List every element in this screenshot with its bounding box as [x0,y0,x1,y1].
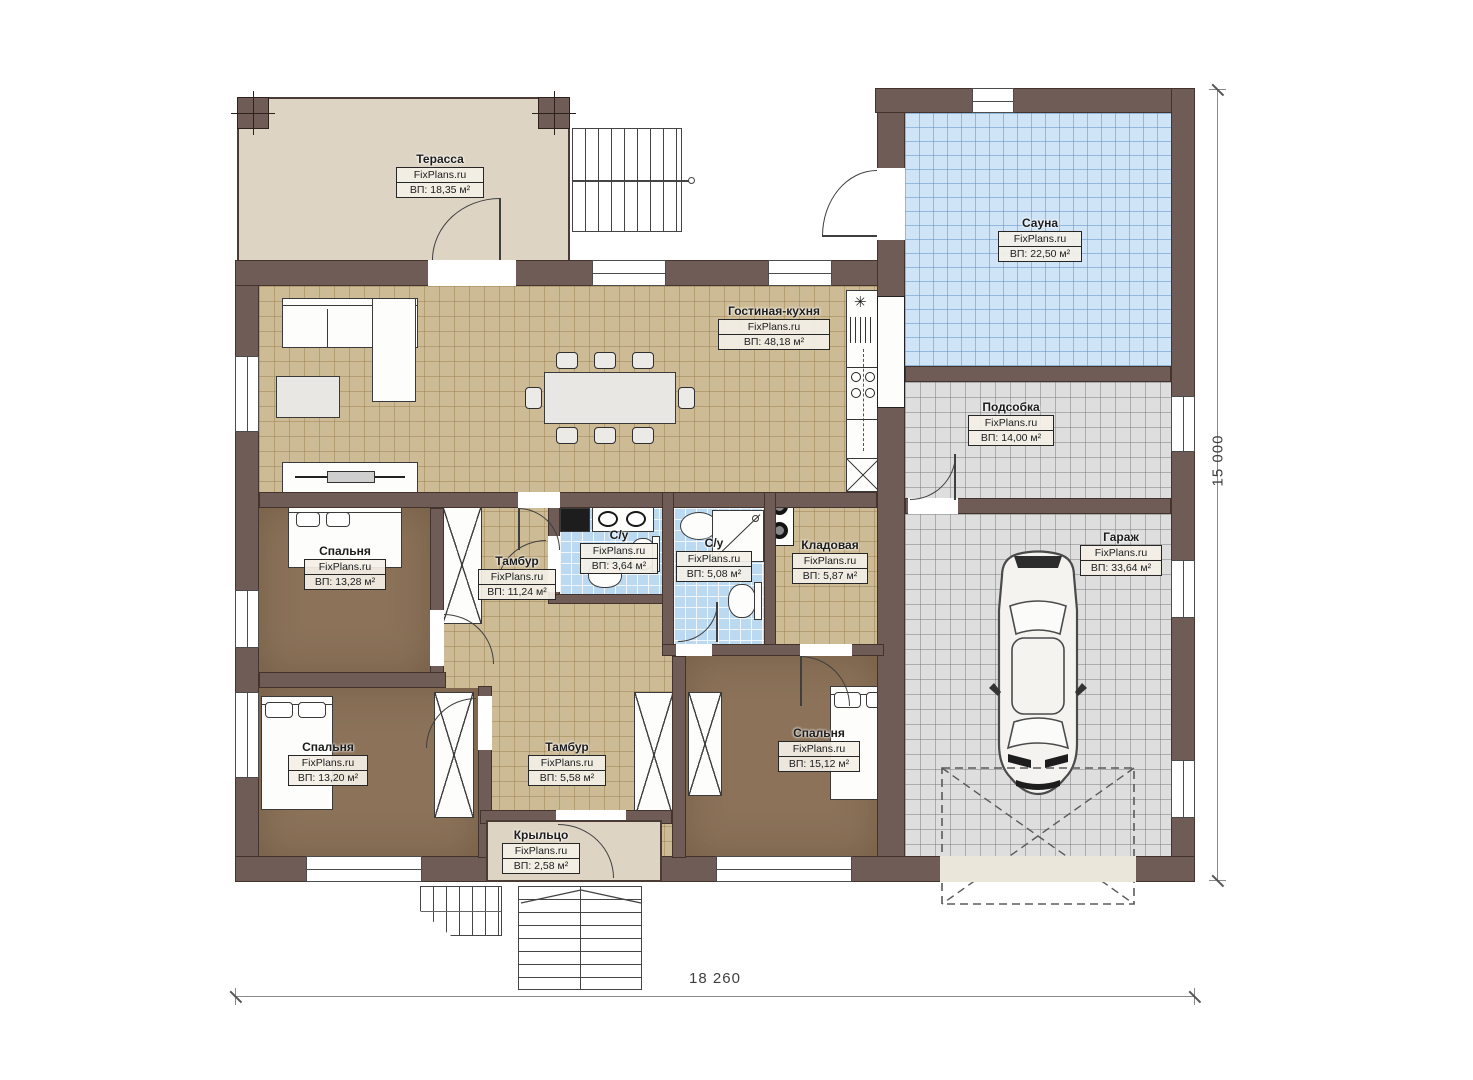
window [306,856,422,882]
stove-burner-icon [851,372,861,382]
wall [548,594,674,604]
dimension-value-right: 15 000 [1210,429,1227,493]
vent-shaft [877,296,905,408]
chair [525,387,542,409]
room-name: Тамбур [478,554,556,568]
stove-burner-icon [865,372,875,382]
wall [259,672,446,688]
room-area: ВП: 33,64 м² [1081,560,1161,575]
garage-gate-opening [940,856,1136,882]
room-area: ВП: 18,35 м² [397,182,483,197]
toilet-tank [754,582,762,620]
chair [594,427,616,444]
door-opening [430,610,444,666]
chair [632,352,654,369]
room-area: ВП: 3,64 м² [581,558,657,573]
dimension-value-bottom: 18 260 [645,970,785,987]
wall [662,492,674,656]
tv-stand [282,462,418,494]
chair [556,427,578,444]
wardrobe [442,506,482,624]
room-area: ВП: 48,18 м² [719,334,829,349]
door-opening [800,644,852,656]
dish-rack-icon [850,317,875,343]
room-name: Тамбур [528,740,606,754]
room-name: Подсобка [968,400,1054,414]
room-name: Спальня [304,544,386,558]
brand-watermark: FixPlans.ru [503,844,579,858]
chair [594,352,616,369]
room-name: Кладовая [792,538,868,552]
brand-watermark: FixPlans.ru [969,416,1053,430]
door-leaf [800,656,802,706]
brand-watermark: FixPlans.ru [793,554,867,568]
room-label-storage: Кладовая FixPlans.ru ВП: 5,87 м² [792,538,868,584]
fridge [846,458,880,492]
chair [632,427,654,444]
room-label-hall2: Тамбур FixPlans.ru ВП: 5,58 м² [528,740,606,786]
room-name: Спальня [778,726,860,740]
window [768,260,832,286]
room-name: С/у [580,528,658,542]
room-name: Спальня [288,740,368,754]
room-area: ВП: 15,12 м² [779,756,859,771]
door-arc [822,170,877,236]
coffee-table [276,376,340,418]
door-opening [908,498,958,514]
door-opening [478,696,492,750]
brand-watermark: FixPlans.ru [779,742,859,756]
room-label-bath2: С/у FixPlans.ru ВП: 5,08 м² [676,536,752,582]
wardrobe [634,692,674,818]
door-leaf [716,602,718,642]
brand-watermark: FixPlans.ru [529,756,605,770]
room-label-porch: Крыльцо FixPlans.ru ВП: 2,58 м² [502,828,580,874]
room-name: Гараж [1080,530,1162,544]
wall [235,260,259,882]
room-label-terrace: Терасса FixPlans.ru ВП: 18,35 м² [396,152,484,198]
chair [678,387,695,409]
room-label-bedroom2: Спальня FixPlans.ru ВП: 13,20 м² [288,740,368,786]
room-label-utility: Подсобка FixPlans.ru ВП: 14,00 м² [968,400,1054,446]
door-leaf [822,235,877,237]
pillow [326,512,350,527]
door-opening [676,644,712,656]
room-area: ВП: 2,58 м² [503,858,579,873]
room-area: ВП: 22,50 м² [999,246,1081,261]
door-opening [877,168,905,240]
room-name: Терасса [396,152,484,166]
window [1171,560,1195,618]
window [235,692,259,778]
room-area: ВП: 5,08 м² [677,566,751,581]
room-label-hall1: Тамбур FixPlans.ru ВП: 11,24 м² [478,554,556,600]
room-name: Сауна [998,216,1082,230]
pillow [298,702,326,718]
pillow [296,512,320,527]
brand-watermark: FixPlans.ru [999,232,1081,246]
room-label-garage: Гараж FixPlans.ru ВП: 33,64 м² [1080,530,1162,576]
pillow [265,702,293,718]
terrace-stairs [572,128,682,232]
window [716,856,852,882]
door-opening [518,492,560,508]
window [235,356,259,432]
wall [672,656,686,858]
terrace-post [538,97,570,129]
car [986,546,1090,802]
room-area: ВП: 13,28 м² [305,574,385,589]
door-leaf [499,198,501,260]
dining-table [544,372,676,424]
brand-watermark: FixPlans.ru [719,320,829,334]
entrance-stairs [518,886,642,990]
wall [875,88,1195,113]
wall [905,366,1171,382]
door-opening [428,260,516,286]
wall [764,492,776,656]
room-area: ВП: 11,24 м² [479,584,555,599]
brand-watermark: FixPlans.ru [1081,546,1161,560]
window [1171,760,1195,818]
garage-entry-zone [940,766,1136,906]
dimension-line-bottom [235,996,1195,997]
brand-watermark: FixPlans.ru [305,560,385,574]
room-label-bedroom1: Спальня FixPlans.ru ВП: 13,28 м² [304,544,386,590]
brand-watermark: FixPlans.ru [479,570,555,584]
wardrobe [688,692,722,796]
room-label-bedroom3: Спальня FixPlans.ru ВП: 15,12 м² [778,726,860,772]
chair [556,352,578,369]
room-label-sauna: Сауна FixPlans.ru ВП: 22,50 м² [998,216,1082,262]
toilet [728,584,756,618]
room-label-living-kitchen: Гостиная-кухня FixPlans.ru ВП: 48,18 м² [718,304,830,350]
wall [259,492,877,508]
sofa-chaise [372,298,416,402]
room-area: ВП: 5,58 м² [529,770,605,785]
door-leaf [954,454,956,500]
window [972,88,1014,113]
brand-watermark: FixPlans.ru [289,756,367,770]
terrace-post [237,97,269,129]
stove-burner-icon [851,388,861,398]
room-name: С/у [676,536,752,550]
brand-watermark: FixPlans.ru [397,168,483,182]
side-stairs [420,886,502,936]
room-area: ВП: 13,20 м² [289,770,367,785]
room-label-bath1: С/у FixPlans.ru ВП: 3,64 м² [580,528,658,574]
floor-plan: ✳ [0,0,1473,1080]
room-area: ВП: 14,00 м² [969,430,1053,445]
sink-fan-icon: ✳ [854,293,867,311]
brand-watermark: FixPlans.ru [581,544,657,558]
room-name: Крыльцо [502,828,580,842]
door-leaf [518,508,520,550]
stove-burner-icon [865,388,875,398]
room-area: ВП: 5,87 м² [793,568,867,583]
window [1171,396,1195,452]
room-name: Гостиная-кухня [718,304,830,318]
brand-watermark: FixPlans.ru [677,552,751,566]
window [592,260,666,286]
window [235,590,259,648]
